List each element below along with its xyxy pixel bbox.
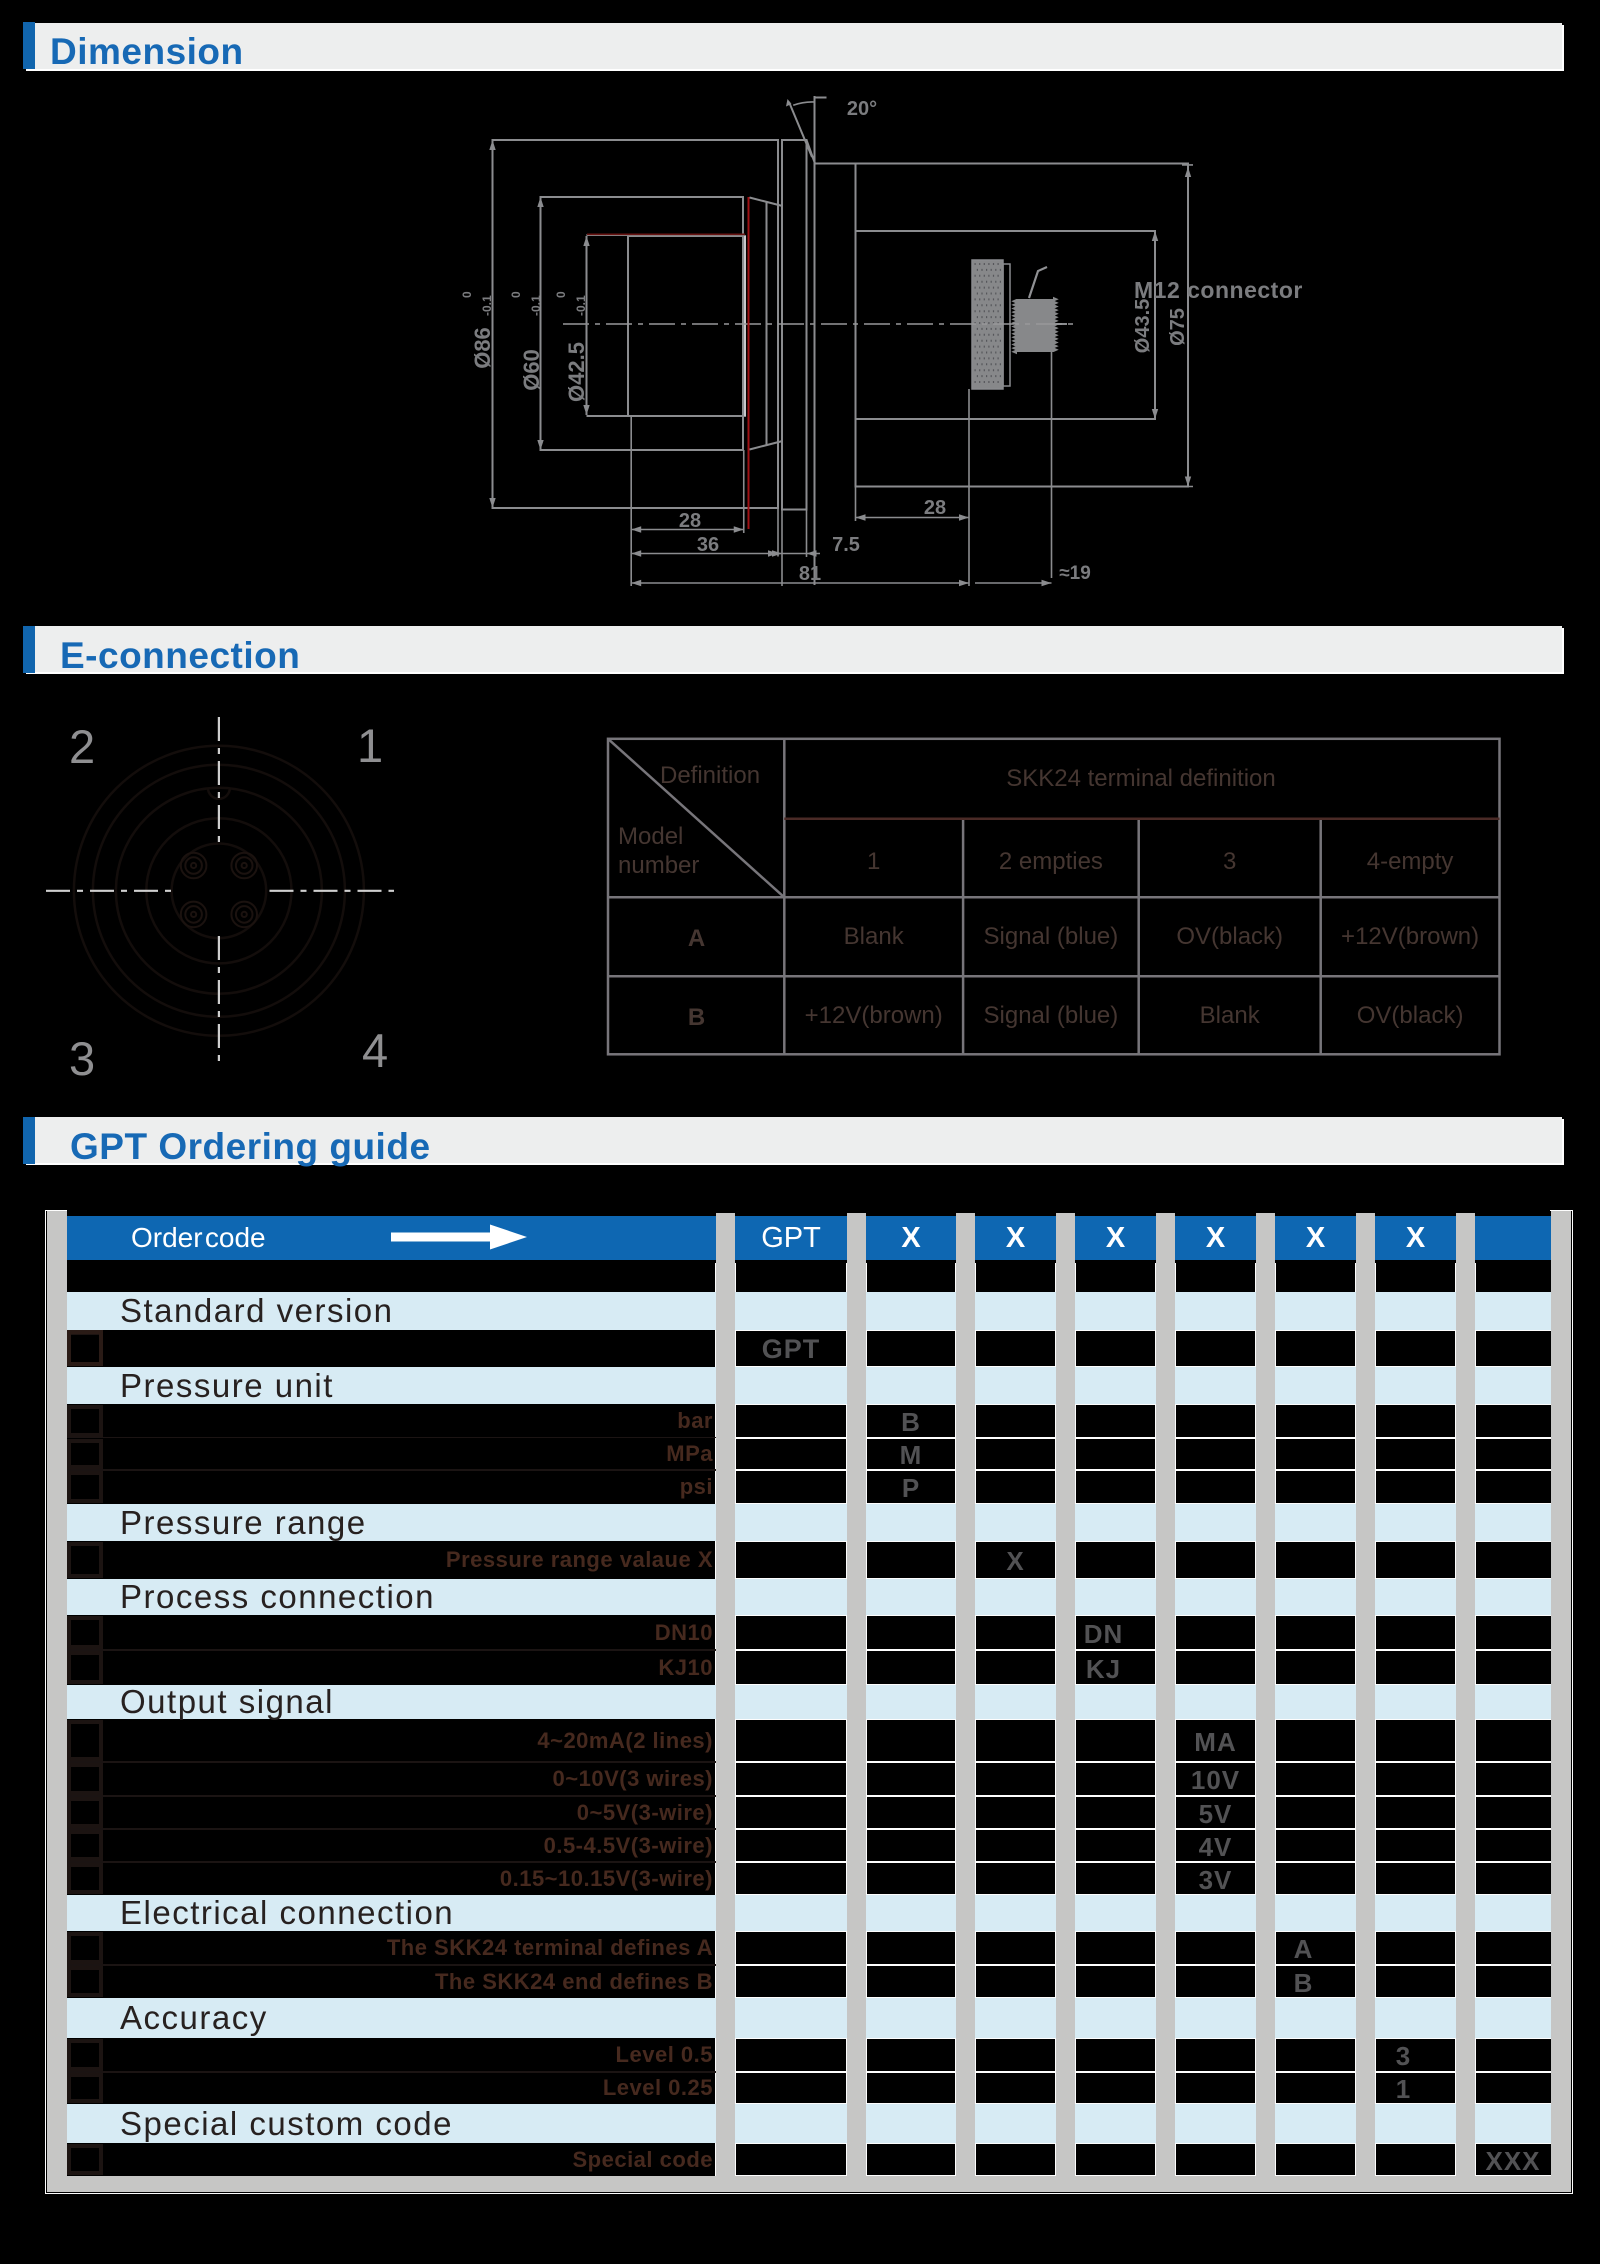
- svg-text:OV(black): OV(black): [1357, 1002, 1464, 1029]
- svg-text:+12V(brown): +12V(brown): [1341, 923, 1479, 950]
- svg-text:-0.1: -0.1: [529, 295, 543, 316]
- svg-text:A: A: [688, 925, 705, 952]
- svg-text:Definition: Definition: [660, 762, 760, 789]
- svg-text:Ø86: Ø86: [470, 327, 495, 369]
- svg-text:28: 28: [679, 510, 701, 532]
- svg-text:-0.1: -0.1: [574, 295, 588, 316]
- svg-text:81: 81: [799, 563, 821, 585]
- svg-text:3: 3: [69, 1032, 95, 1085]
- svg-text:2: 2: [69, 720, 95, 773]
- svg-text:B: B: [688, 1004, 705, 1031]
- svg-text:number: number: [618, 852, 699, 879]
- svg-text:-0.1: -0.1: [480, 295, 494, 316]
- svg-text:OV(black): OV(black): [1176, 923, 1283, 950]
- svg-text:≈19: ≈19: [1059, 563, 1091, 584]
- svg-text:4-empty: 4-empty: [1367, 848, 1454, 875]
- svg-text:Blank: Blank: [844, 923, 905, 950]
- svg-text:Signal (blue): Signal (blue): [984, 1002, 1119, 1029]
- svg-text:1: 1: [357, 719, 383, 772]
- svg-text:3: 3: [1223, 848, 1236, 875]
- svg-text:+12V(brown): +12V(brown): [805, 1002, 943, 1029]
- svg-text:SKK24 terminal definition: SKK24 terminal definition: [1006, 765, 1275, 792]
- svg-text:Ø60: Ø60: [519, 349, 544, 391]
- svg-text:1: 1: [867, 848, 880, 875]
- svg-text:Signal (blue): Signal (blue): [984, 923, 1119, 950]
- svg-text:28: 28: [924, 497, 946, 519]
- svg-text:0: 0: [509, 291, 523, 298]
- svg-text:7.5: 7.5: [832, 534, 860, 556]
- svg-text:2 empties: 2 empties: [999, 848, 1103, 875]
- svg-text:20°: 20°: [847, 98, 877, 120]
- svg-text:M12 connector: M12 connector: [1134, 277, 1303, 303]
- svg-text:Blank: Blank: [1200, 1002, 1261, 1029]
- svg-text:Ø75: Ø75: [1167, 308, 1189, 346]
- svg-text:Ø43.5: Ø43.5: [1132, 299, 1154, 353]
- svg-text:36: 36: [697, 534, 719, 556]
- svg-text:4: 4: [362, 1024, 388, 1077]
- svg-text:Ø42.5: Ø42.5: [564, 342, 589, 402]
- svg-text:Model: Model: [618, 823, 683, 850]
- svg-text:0: 0: [554, 291, 568, 298]
- svg-text:0: 0: [460, 291, 474, 298]
